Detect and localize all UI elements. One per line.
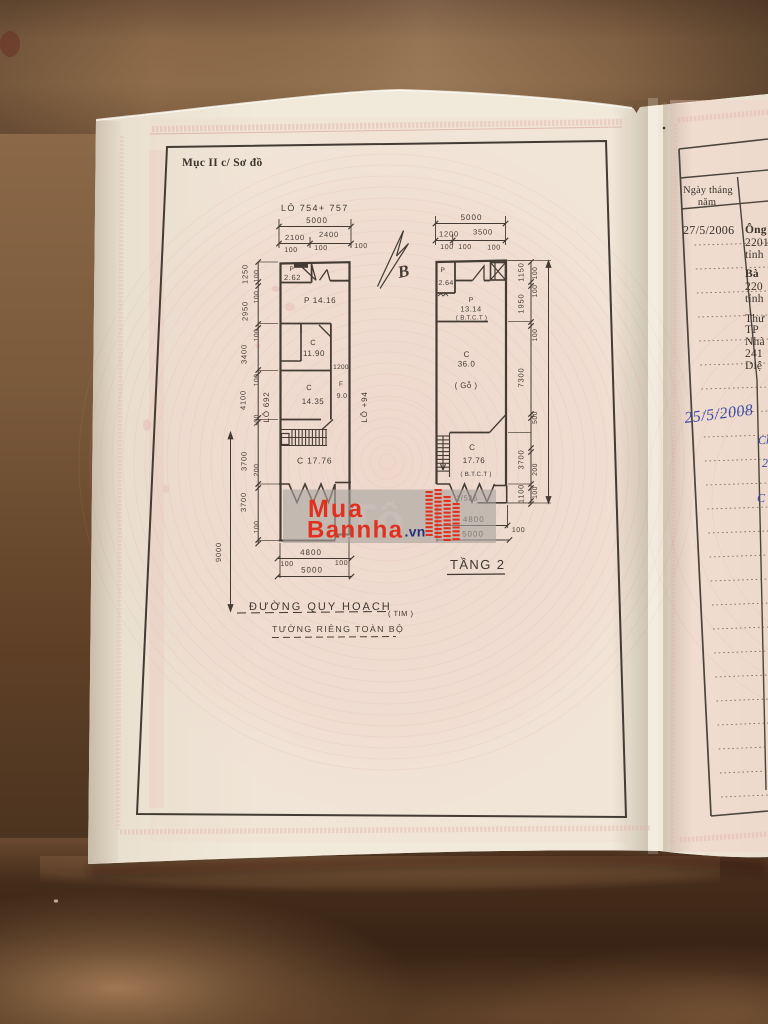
svg-text:Nhà: Nhà (745, 336, 765, 348)
svg-text:3700: 3700 (240, 451, 249, 471)
svg-text:Diệ: Diệ (745, 360, 762, 372)
svg-text:100: 100 (253, 270, 260, 283)
svg-text:36.0: 36.0 (458, 360, 476, 369)
svg-text:tỉnh: tỉnh (745, 293, 764, 305)
svg-text:TƯỜNG RIÊNG TOÀN BỘ: TƯỜNG RIÊNG TOÀN BỘ (272, 624, 404, 634)
svg-text:C: C (310, 338, 316, 347)
svg-text:Bà: Bà (745, 268, 759, 280)
svg-text:2.62: 2.62 (284, 273, 301, 282)
svg-text:100: 100 (532, 267, 539, 280)
svg-text:11.90: 11.90 (303, 349, 325, 358)
svg-text:14.35: 14.35 (302, 397, 325, 406)
svg-text:100: 100 (458, 244, 471, 251)
svg-text:ĐƯỜNG QUY HOẠCH: ĐƯỜNG QUY HOẠCH (249, 600, 392, 613)
svg-text:LÔ +94: LÔ +94 (360, 391, 369, 422)
svg-text:F: F (339, 381, 343, 388)
svg-text:C 17.76: C 17.76 (297, 456, 332, 466)
svg-text:100: 100 (280, 561, 293, 568)
svg-text:P: P (441, 267, 445, 274)
svg-text:100: 100 (253, 414, 260, 427)
svg-text:Bannha: Bannha (307, 517, 403, 544)
svg-text:100: 100 (253, 374, 260, 387)
svg-text:100: 100 (354, 243, 367, 250)
svg-text:100: 100 (512, 527, 525, 534)
svg-text:9.0: 9.0 (337, 393, 348, 400)
svg-text:3400: 3400 (240, 344, 249, 364)
svg-text:P 14.16: P 14.16 (304, 296, 336, 305)
svg-text:200: 200 (253, 464, 260, 477)
svg-text:tỉnh: tỉnh (745, 249, 764, 261)
svg-text:2.64: 2.64 (439, 280, 454, 287)
svg-text:2201: 2201 (745, 237, 768, 249)
svg-text:TẦNG 2: TẦNG 2 (450, 557, 505, 572)
svg-text:100: 100 (532, 329, 539, 342)
svg-text:1200: 1200 (439, 230, 459, 239)
svg-text:Ông: Ông (745, 223, 767, 236)
svg-text:241: 241 (745, 348, 763, 360)
svg-text:5000: 5000 (461, 213, 483, 222)
svg-text:2100: 2100 (285, 233, 305, 242)
svg-text:7300: 7300 (517, 368, 526, 388)
svg-text:( B.T.C.T ): ( B.T.C.T ) (460, 471, 491, 478)
svg-text:2950: 2950 (241, 301, 250, 321)
svg-text:P: P (469, 297, 474, 304)
svg-text:1100: 1100 (517, 484, 526, 503)
svg-text:500: 500 (532, 411, 539, 424)
svg-text:năm: năm (698, 197, 716, 208)
svg-text:Mục II c/ Sơ đồ: Mục II c/ Sơ đồ (182, 157, 263, 169)
svg-text:100: 100 (440, 244, 453, 251)
svg-text:4800: 4800 (300, 548, 322, 557)
svg-text:5000: 5000 (306, 216, 328, 225)
svg-text:( Gỗ ): ( Gỗ ) (455, 381, 478, 390)
svg-text:9000: 9000 (214, 542, 223, 562)
svg-text:100: 100 (335, 560, 348, 567)
svg-text:17.76: 17.76 (463, 456, 486, 465)
svg-text:1150: 1150 (517, 262, 526, 281)
svg-text:4100: 4100 (239, 390, 248, 410)
svg-text:LÔ 692: LÔ 692 (262, 391, 271, 422)
svg-text:100: 100 (487, 245, 500, 252)
svg-text:220: 220 (745, 281, 763, 293)
svg-text:P: P (290, 266, 294, 273)
svg-text:100: 100 (314, 245, 327, 252)
svg-text:( B.T.C.T ): ( B.T.C.T ) (456, 315, 487, 322)
svg-text:2400: 2400 (319, 230, 339, 239)
svg-text:13.14: 13.14 (460, 305, 481, 314)
svg-text:3500: 3500 (473, 228, 493, 237)
svg-text:100: 100 (284, 247, 297, 254)
svg-text:LÔ 754+ 757: LÔ 754+ 757 (281, 203, 349, 213)
svg-text:100: 100 (253, 521, 260, 534)
svg-text:1250: 1250 (241, 264, 250, 284)
svg-text:1200: 1200 (333, 364, 349, 371)
svg-text:.vn: .vn (405, 524, 426, 540)
svg-text:C: C (757, 491, 766, 505)
svg-text:( TIM ): ( TIM ) (388, 609, 413, 618)
svg-text:100: 100 (532, 486, 539, 499)
svg-text:C: C (306, 383, 312, 392)
svg-text:1950: 1950 (517, 294, 526, 314)
svg-text:27/5/2006: 27/5/2006 (683, 223, 734, 237)
svg-text:100: 100 (253, 329, 260, 342)
svg-text:Ch: Ch (758, 433, 768, 447)
svg-text:3700: 3700 (239, 492, 248, 512)
svg-text:100: 100 (532, 285, 539, 298)
svg-text:5000: 5000 (301, 566, 323, 575)
svg-text:C: C (469, 443, 475, 452)
svg-text:Ngày tháng: Ngày tháng (683, 185, 733, 196)
svg-text:3700: 3700 (517, 450, 526, 470)
svg-text:TP: TP (745, 324, 759, 336)
svg-text:2: 2 (762, 456, 768, 470)
svg-text:200: 200 (532, 463, 539, 476)
svg-text:C: C (464, 350, 470, 359)
svg-text:100: 100 (253, 291, 260, 304)
